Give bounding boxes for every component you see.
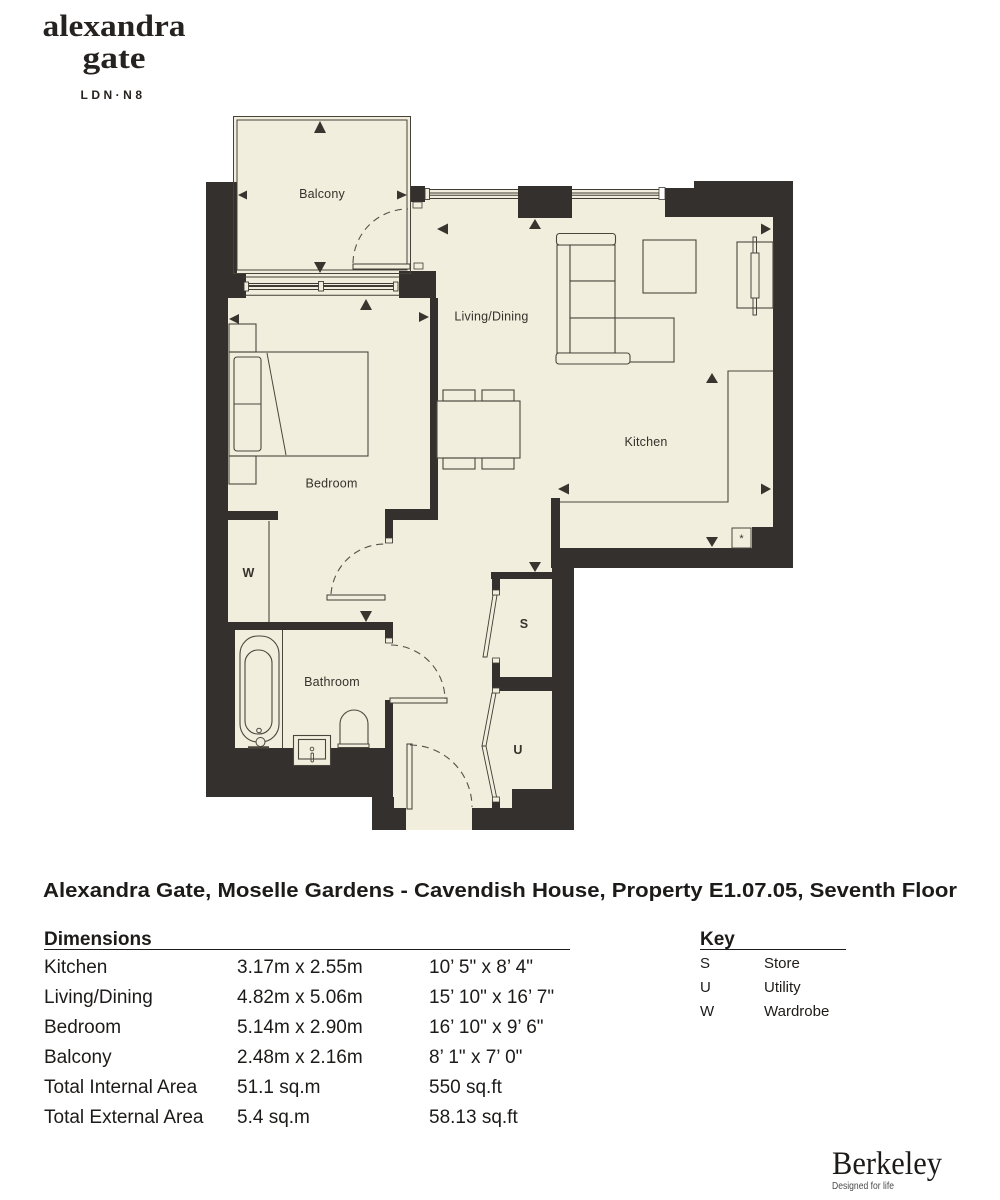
svg-text:2.48m x 2.16m: 2.48m x 2.16m [237, 1047, 363, 1068]
svg-text:Designed for life: Designed for life [832, 1180, 894, 1192]
svg-text:15’ 10" x 16’ 7": 15’ 10" x 16’ 7" [429, 987, 554, 1008]
svg-text:LDN·N8: LDN·N8 [81, 88, 146, 102]
svg-text:Living/Dining: Living/Dining [454, 310, 528, 324]
svg-text:Bedroom: Bedroom [44, 1017, 121, 1038]
svg-text:550 sq.ft: 550 sq.ft [429, 1077, 503, 1098]
svg-text:gate: gate [83, 40, 146, 75]
svg-text:Bedroom: Bedroom [305, 477, 357, 491]
svg-text:U: U [513, 743, 522, 757]
svg-text:Berkeley: Berkeley [832, 1146, 942, 1182]
svg-text:Wardrobe: Wardrobe [764, 1003, 829, 1020]
svg-text:alexandra: alexandra [43, 8, 187, 43]
svg-text:U: U [700, 979, 711, 996]
svg-text:Utility: Utility [764, 979, 801, 996]
svg-text:Store: Store [764, 955, 800, 972]
svg-text:W: W [700, 1003, 715, 1020]
svg-text:5.14m x 2.90m: 5.14m x 2.90m [237, 1017, 363, 1038]
svg-text:W: W [243, 566, 255, 580]
svg-text:16’ 10" x 9’ 6": 16’ 10" x 9’ 6" [429, 1017, 544, 1038]
svg-text:51.1 sq.m: 51.1 sq.m [237, 1077, 320, 1098]
svg-text:S: S [520, 617, 529, 631]
svg-text:S: S [700, 955, 710, 972]
svg-text:Dimensions: Dimensions [44, 929, 152, 950]
svg-text:3.17m x 2.55m: 3.17m x 2.55m [237, 957, 363, 978]
svg-text:58.13 sq.ft: 58.13 sq.ft [429, 1107, 518, 1128]
svg-text:5.4 sq.m: 5.4 sq.m [237, 1107, 310, 1128]
svg-text:Kitchen: Kitchen [624, 435, 667, 449]
svg-text:Total Internal Area: Total Internal Area [44, 1077, 198, 1098]
svg-text:Key: Key [700, 929, 735, 950]
svg-text:Kitchen: Kitchen [44, 957, 107, 978]
svg-text:Total External Area: Total External Area [44, 1107, 204, 1128]
svg-text:*: * [739, 533, 744, 545]
svg-text:Alexandra Gate, Moselle Garden: Alexandra Gate, Moselle Gardens - Cavend… [43, 880, 957, 902]
svg-text:Bathroom: Bathroom [304, 675, 360, 689]
svg-text:8’ 1" x 7’ 0": 8’ 1" x 7’ 0" [429, 1047, 522, 1068]
svg-text:Balcony: Balcony [44, 1047, 112, 1068]
svg-text:Living/Dining: Living/Dining [44, 987, 153, 1008]
svg-text:10’ 5" x 8’ 4": 10’ 5" x 8’ 4" [429, 957, 533, 978]
svg-text:4.82m x 5.06m: 4.82m x 5.06m [237, 987, 363, 1008]
svg-text:Balcony: Balcony [299, 187, 345, 201]
